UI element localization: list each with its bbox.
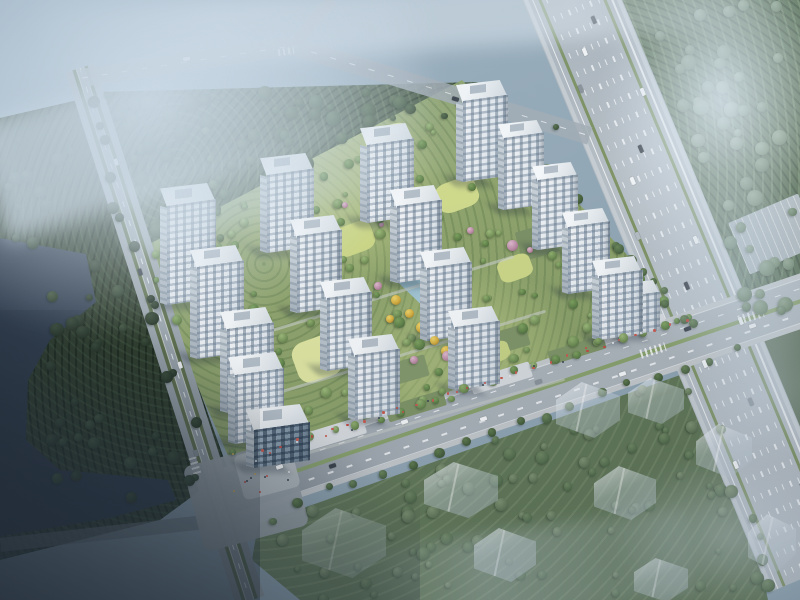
tree-east-forest-trees xyxy=(740,177,753,190)
tree-east-forest-trees xyxy=(723,6,735,18)
tree-field-trees xyxy=(536,451,549,464)
tree-east-forest-trees xyxy=(783,258,795,270)
building-side xyxy=(448,327,455,390)
tree-field-trees xyxy=(762,579,775,592)
dot-sidewalk-people xyxy=(456,391,458,393)
tree-field-trees xyxy=(725,485,738,498)
tree-field-trees xyxy=(463,542,473,552)
tree-east-forest-trees xyxy=(753,300,768,315)
tree-lake-forest-lower xyxy=(184,475,195,486)
tree-blvd-north-trees xyxy=(552,355,560,363)
tree-blvd-north-trees xyxy=(333,426,339,432)
tree-lake-forest-lower xyxy=(126,492,136,502)
tree-field-trees xyxy=(410,548,417,555)
tree-blvd-north-trees xyxy=(573,351,581,359)
tree-courtyard-trees xyxy=(321,387,332,398)
tree-field-trees xyxy=(659,433,670,444)
tree-top-road-trees xyxy=(272,106,280,114)
tree-lake-forest-upper xyxy=(105,172,116,183)
tree-east-forest-trees xyxy=(702,81,714,93)
tree-north-forest-trees xyxy=(309,95,323,109)
tree-field-trees xyxy=(538,571,546,579)
tree-golden-trees xyxy=(386,315,394,323)
tree-blvd-south-trees xyxy=(349,480,358,489)
tree-east-forest-trees xyxy=(788,208,796,216)
tree-courtyard-trees xyxy=(416,175,424,183)
tree-courtyard-trees xyxy=(346,264,354,272)
tree-lake-forest-upper xyxy=(100,135,110,145)
tree-courtyard-trees xyxy=(468,183,476,191)
dot-sidewalk-people xyxy=(562,361,564,363)
tree-courtyard-trees xyxy=(418,140,427,149)
tree-lake-forest-lower xyxy=(46,361,55,370)
tree-east-forest-trees xyxy=(693,100,709,116)
tree-blossom-trees xyxy=(527,247,533,253)
building-facade xyxy=(355,349,400,420)
ghost-ridge xyxy=(492,529,505,580)
tree-courtyard-trees xyxy=(375,229,386,240)
tree-north-forest-trees xyxy=(246,156,255,165)
tree-lake-forest-lower xyxy=(76,326,89,339)
building-side xyxy=(290,236,297,313)
ghost-ridge xyxy=(712,425,725,476)
tree-blvd-south-trees xyxy=(462,437,471,446)
tree-east-forest-trees xyxy=(773,53,783,63)
building-facade xyxy=(455,321,500,390)
tree-ne-buffer-trees xyxy=(614,244,624,254)
tree-lake-forest-upper xyxy=(41,199,53,211)
tree-lake-forest-upper xyxy=(47,291,58,302)
tree-field-trees xyxy=(361,578,371,588)
tree-top-road-trees xyxy=(441,113,448,120)
dot-sidewalk-shrubs xyxy=(566,354,569,357)
tree-field-trees xyxy=(523,513,532,522)
tree-lake-forest-lower xyxy=(152,432,160,440)
tree-north-forest-trees xyxy=(183,95,199,111)
tree-lake-forest-upper xyxy=(45,114,53,122)
tree-field-trees xyxy=(445,582,452,589)
tree-field-trees xyxy=(685,451,693,459)
road-nw-road-a xyxy=(81,37,294,87)
ghost-ridge xyxy=(575,383,588,436)
tree-lake-forest-upper xyxy=(96,122,104,130)
tree-field-trees xyxy=(277,534,289,546)
tree-courtyard-trees xyxy=(519,289,525,295)
tree-field-trees xyxy=(417,547,429,559)
dot-sidewalk-shrubs xyxy=(653,329,656,332)
dot-sidewalk-shrubs xyxy=(686,319,689,322)
tree-top-road-trees xyxy=(327,104,334,111)
tree-lake-forest-lower xyxy=(46,434,57,445)
tree-blvd-south-trees xyxy=(434,448,445,459)
tree-east-forest-trees xyxy=(724,236,737,249)
ghost-ridge xyxy=(650,559,661,600)
dot-sidewalk-shrubs xyxy=(500,377,503,380)
tree-blvd-south-trees xyxy=(542,413,552,423)
tree-courtyard-trees xyxy=(532,293,537,298)
ghost-ridge xyxy=(612,467,625,518)
tree-courtyard-trees xyxy=(583,323,593,333)
tree-lake-forest-upper xyxy=(115,213,124,222)
tree-lake-forest-lower xyxy=(119,324,127,332)
dot-sidewalk-shrubs xyxy=(532,367,535,370)
tree-east-forest-trees xyxy=(759,260,775,276)
tree-east-forest-trees xyxy=(723,200,734,211)
tree-courtyard-trees xyxy=(424,384,431,391)
tree-lake-forest-upper xyxy=(145,312,158,325)
ghost-ridge xyxy=(760,516,774,571)
building-side xyxy=(456,101,463,182)
dot-sidewalk-shrubs xyxy=(261,449,264,452)
tree-courtyard-trees xyxy=(674,318,680,324)
tree-east-forest-trees xyxy=(757,102,767,112)
tree-blvd-north-trees xyxy=(619,333,628,342)
tree-lake-forest-upper xyxy=(90,260,101,271)
tree-lake-forest-upper xyxy=(129,241,140,252)
tree-east-forest-trees xyxy=(736,222,747,233)
tree-east-forest-trees xyxy=(747,190,763,206)
dot-sidewalk-people xyxy=(640,332,642,334)
tree-lake-forest-lower xyxy=(74,433,83,442)
tree-courtyard-trees xyxy=(483,295,490,302)
dot-sidewalk-people xyxy=(427,400,429,402)
building-18 xyxy=(246,404,310,468)
tree-courtyard-trees xyxy=(568,336,579,347)
tree-north-forest-trees xyxy=(285,106,299,120)
dot-plaza-people xyxy=(233,490,235,492)
tree-courtyard-trees xyxy=(240,218,249,227)
tree-north-forest-trees xyxy=(161,150,173,162)
dot-sidewalk-shrubs xyxy=(363,420,366,423)
tree-north-forest-trees xyxy=(362,88,371,97)
tree-lake-forest-lower xyxy=(94,414,104,424)
tree-blvd-south-trees xyxy=(379,470,387,478)
tree-lake-forest-upper xyxy=(27,237,39,249)
tree-field-trees xyxy=(716,548,722,554)
building-17 xyxy=(592,256,642,340)
tree-east-forest-trees xyxy=(714,58,725,69)
tree-north-forest-trees xyxy=(309,108,321,120)
tree-field-trees xyxy=(718,507,727,516)
building-side xyxy=(348,355,355,420)
building-facade xyxy=(254,422,310,468)
tree-courtyard-trees xyxy=(435,368,442,375)
tree-east-forest-trees xyxy=(691,134,704,147)
tree-lake-forest-upper xyxy=(67,147,76,156)
tree-blvd-south-trees xyxy=(517,417,525,425)
tree-courtyard-trees xyxy=(394,317,404,327)
aerial-residential-render xyxy=(0,0,800,600)
tree-field-trees xyxy=(600,457,610,467)
dot-sidewalk-people xyxy=(351,429,353,431)
tree-field-trees xyxy=(686,421,698,433)
tree-top-road-trees xyxy=(220,94,226,100)
tree-east-forest-trees xyxy=(675,64,684,73)
tree-courtyard-trees xyxy=(403,339,410,346)
tree-courtyard-trees xyxy=(518,323,528,333)
tree-field-trees xyxy=(564,482,572,490)
tree-top-road-trees xyxy=(553,124,559,130)
tree-courtyard-trees xyxy=(152,250,161,259)
tree-field-trees xyxy=(730,584,737,591)
tree-field-trees xyxy=(295,566,301,572)
tree-east-forest-trees xyxy=(677,99,690,112)
tree-lake-forest-upper xyxy=(12,234,20,242)
building-side xyxy=(420,268,427,341)
tree-field-trees xyxy=(589,468,597,476)
dot-sidewalk-shrubs xyxy=(415,404,418,407)
tree-lake-forest-lower xyxy=(91,342,101,352)
tree-north-forest-trees xyxy=(227,160,237,170)
tree-field-trees xyxy=(685,388,692,395)
ghost-ridge xyxy=(447,463,460,516)
tree-blossom-trees xyxy=(467,227,474,234)
tree-ne-buffer-trees xyxy=(661,300,669,308)
tree-north-forest-trees xyxy=(258,86,272,100)
dot-sidewalk-shrubs xyxy=(382,411,385,414)
ghost-ridge xyxy=(645,379,656,423)
tree-north-forest-trees xyxy=(114,109,125,120)
tree-east-forest-trees xyxy=(730,137,743,150)
dot-sidewalk-shrubs xyxy=(634,334,637,337)
tree-north-forest-trees xyxy=(141,96,157,112)
tree-lake-forest-lower xyxy=(71,398,79,406)
tree-east-forest-trees xyxy=(738,105,749,116)
dot-sidewalk-shrubs xyxy=(296,438,299,441)
tree-blvd-south-trees xyxy=(326,483,333,490)
tree-courtyard-trees xyxy=(524,347,530,353)
tree-east-forest-trees xyxy=(698,152,709,163)
tree-east-forest-trees xyxy=(772,130,787,145)
tree-courtyard-trees xyxy=(320,172,328,180)
tree-lake-forest-lower xyxy=(50,323,64,337)
building-side xyxy=(592,276,599,340)
tree-field-trees xyxy=(677,472,684,479)
tree-field-trees xyxy=(402,479,410,487)
dot-sidewalk-shrubs xyxy=(279,446,282,449)
dot-sidewalk-people xyxy=(296,441,298,443)
tree-golden-trees xyxy=(391,295,401,305)
dot-sidewalk-people xyxy=(509,375,511,377)
tree-blossom-trees xyxy=(374,282,382,290)
tree-east-forest-trees xyxy=(724,102,739,117)
tree-lake-forest-upper xyxy=(21,170,33,182)
building-13 xyxy=(448,306,500,390)
dot-plaza-people xyxy=(255,460,257,462)
tree-field-trees xyxy=(441,533,452,544)
building-12 xyxy=(348,334,400,420)
dot-sidewalk-people xyxy=(325,435,327,437)
tree-field-trees xyxy=(553,527,562,536)
tree-golden-trees xyxy=(430,336,439,345)
tree-lake-forest-lower xyxy=(167,451,181,465)
tree-courtyard-trees xyxy=(481,258,486,263)
building-facade xyxy=(599,270,643,340)
tree-blvd-south-trees xyxy=(292,498,303,509)
tree-field-trees xyxy=(628,443,637,452)
tree-lake-forest-lower xyxy=(85,420,95,430)
tree-north-forest-trees xyxy=(143,140,157,154)
tree-blvd-south-trees xyxy=(623,379,630,386)
tree-field-trees xyxy=(547,511,556,520)
tree-lake-forest-upper xyxy=(34,186,47,199)
tree-east-forest-trees xyxy=(771,1,782,12)
tree-north-forest-trees xyxy=(175,126,190,141)
tree-north-forest-trees xyxy=(219,189,230,200)
tree-courtyard-trees xyxy=(482,240,489,247)
tree-courtyard-trees xyxy=(374,292,380,298)
tree-field-trees xyxy=(388,532,396,540)
tree-north-forest-trees xyxy=(164,108,179,123)
dot-sidewalk-shrubs xyxy=(346,424,349,427)
tree-east-forest-trees xyxy=(694,9,706,21)
dot-sidewalk-people xyxy=(612,342,614,344)
tree-east-forest-trees xyxy=(742,302,751,311)
tree-lake-forest-lower xyxy=(124,457,136,469)
tree-westroad-trees xyxy=(207,155,214,162)
dot-sidewalk-shrubs xyxy=(331,428,334,431)
tree-field-trees xyxy=(393,567,403,577)
building-side xyxy=(390,206,397,283)
tree-east-forest-trees xyxy=(716,81,730,95)
tree-golden-trees xyxy=(405,309,414,318)
tree-east-forest-trees xyxy=(717,117,730,130)
tree-lake-forest-lower xyxy=(161,371,173,383)
lane-line-nw-road-a-0 xyxy=(82,46,292,79)
tree-blossom-trees xyxy=(410,356,418,364)
tree-north-forest-trees xyxy=(237,139,248,150)
dot-plaza-people xyxy=(288,471,290,473)
tree-courtyard-trees xyxy=(509,354,519,364)
ghost-ridge xyxy=(327,510,343,576)
tree-north-forest-trees xyxy=(200,94,211,105)
building-side xyxy=(320,298,327,371)
tree-courtyard-trees xyxy=(448,396,454,402)
tree-blossom-trees xyxy=(342,202,348,208)
tree-north-forest-trees xyxy=(336,132,348,144)
tree-east-forest-trees xyxy=(755,142,769,156)
tree-field-trees xyxy=(307,505,319,517)
tree-courtyard-trees xyxy=(507,240,518,251)
tree-lake-forest-lower xyxy=(71,471,81,481)
